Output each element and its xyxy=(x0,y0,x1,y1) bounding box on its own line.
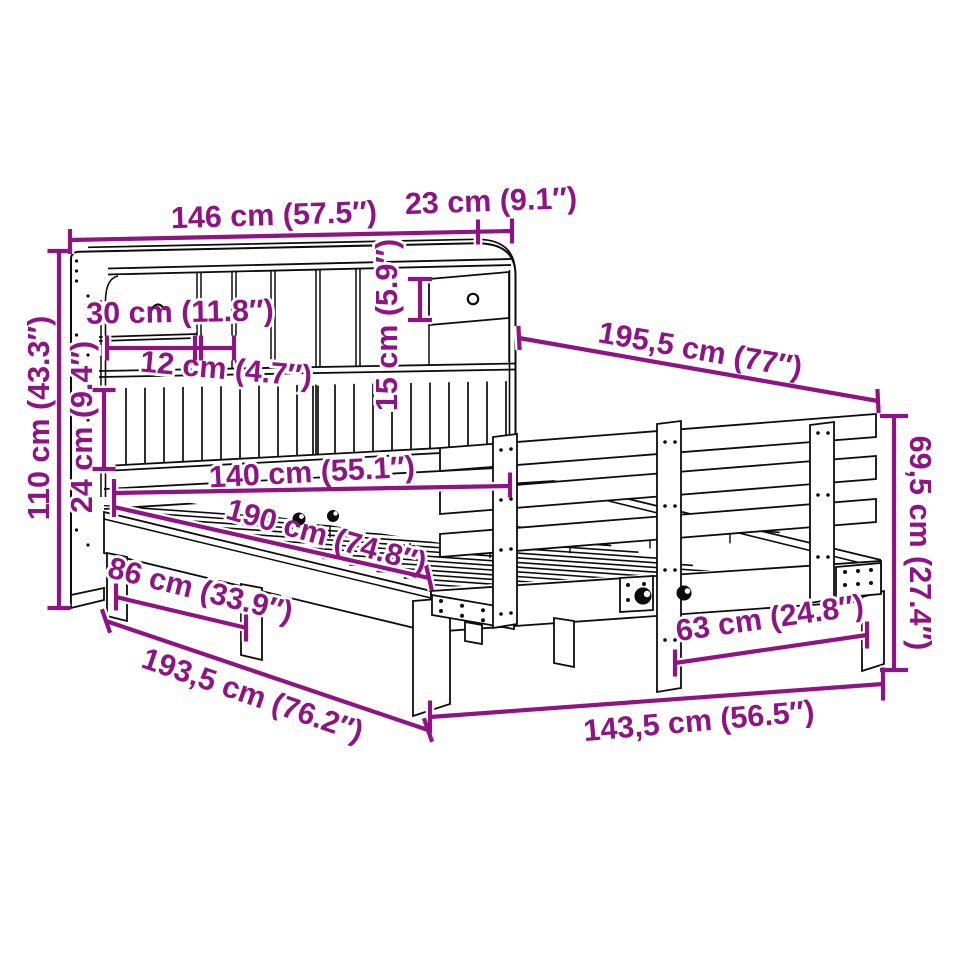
svg-text:15 cm (5.9″): 15 cm (5.9″) xyxy=(370,239,404,411)
svg-text:146 cm (57.5″): 146 cm (57.5″) xyxy=(170,195,377,235)
svg-text:69,5 cm (27.4″): 69,5 cm (27.4″) xyxy=(903,436,937,651)
svg-text:30 cm (11.8″): 30 cm (11.8″) xyxy=(86,293,274,330)
svg-text:110 cm (43.3″): 110 cm (43.3″) xyxy=(22,316,56,521)
svg-text:24 cm (9.4″): 24 cm (9.4″) xyxy=(65,341,99,513)
svg-text:23 cm (9.1″): 23 cm (9.1″) xyxy=(404,181,577,221)
